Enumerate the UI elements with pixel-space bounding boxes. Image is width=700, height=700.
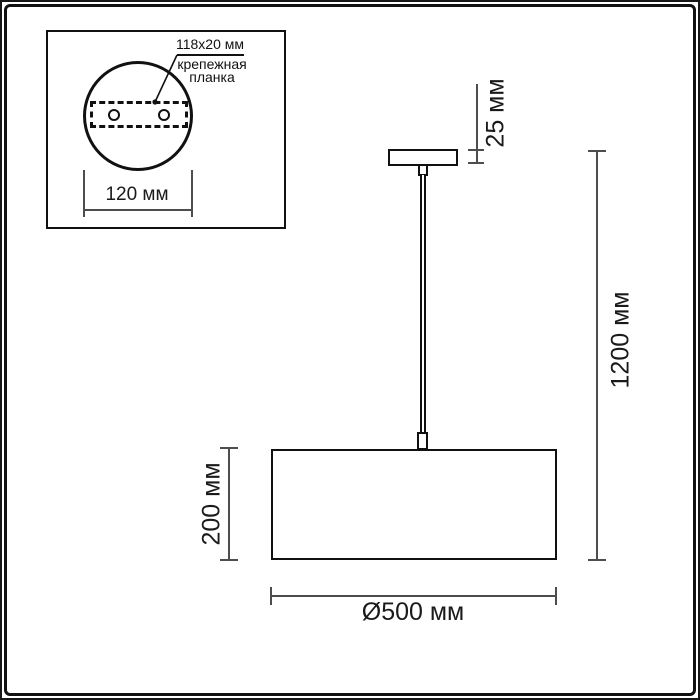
shade-diameter-dimension-line (271, 595, 557, 597)
total-height-tick-bottom (588, 559, 606, 561)
total-height-tick-top (588, 150, 606, 152)
shade-diameter-tick-right (555, 587, 557, 605)
spec-drawing: 118x20 мм крепежная планка 120 мм 25 мм … (0, 0, 700, 700)
shade-diameter-tick-left (270, 587, 272, 605)
canopy-height-tick-top (468, 149, 484, 151)
bracket-size-label: 118x20 мм (160, 38, 260, 52)
plate-width-dimension-line (83, 209, 193, 211)
shade-height-tick-top (220, 447, 238, 449)
bracket-name-line2: планка (162, 71, 262, 85)
total-height-dimension-line (596, 151, 598, 561)
lamp-shade (271, 449, 557, 560)
canopy-height-dimension-line (476, 84, 478, 164)
shade-height-label: 200 мм (198, 462, 227, 545)
shade-height-tick-bottom (220, 559, 238, 561)
total-height-label: 1200 мм (607, 292, 636, 389)
mount-detail-inset: 118x20 мм крепежная планка 120 мм (46, 30, 286, 229)
suspension-cable (420, 175, 426, 434)
canopy-height-tick-bottom (468, 162, 484, 164)
plate-width-label: 120 мм (105, 184, 168, 206)
canopy-height-label: 25 мм (482, 78, 511, 147)
shade-diameter-label: Ø500 мм (362, 598, 464, 627)
cord-grip (417, 432, 428, 450)
shade-height-dimension-line (228, 448, 230, 561)
